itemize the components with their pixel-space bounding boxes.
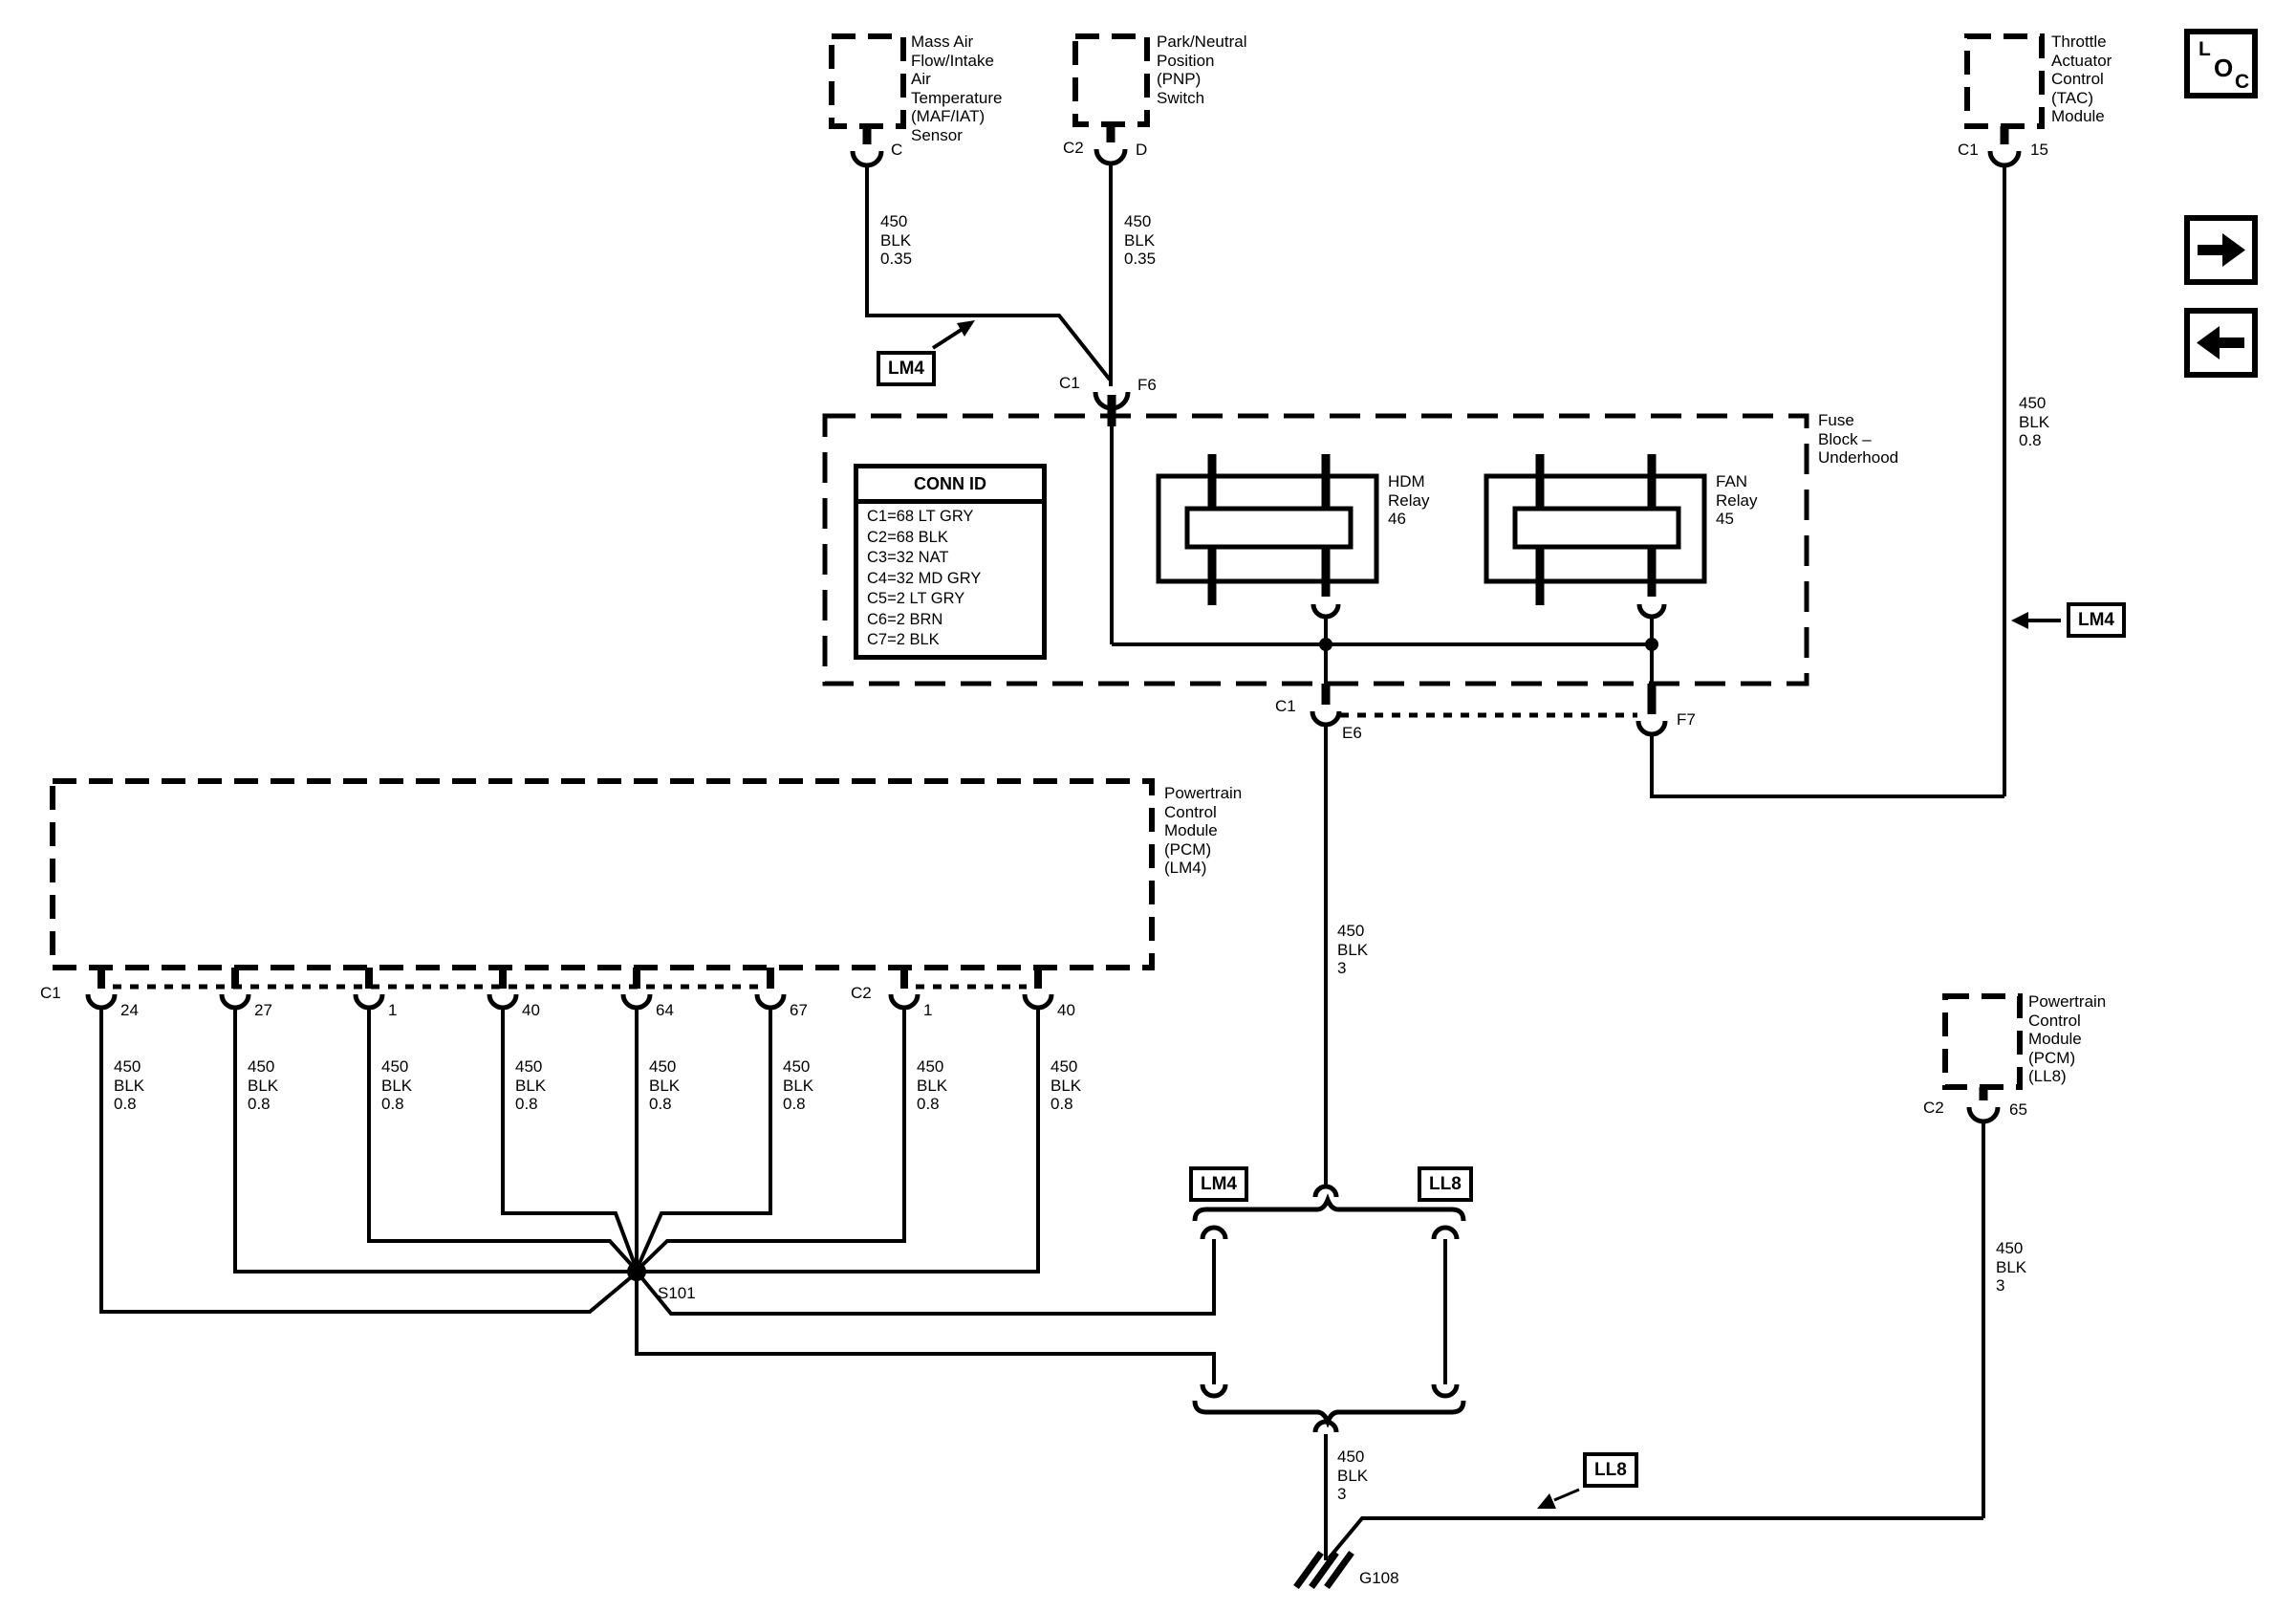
f6-conn-label: C1 xyxy=(1059,375,1080,391)
pcm-pin-number: 64 xyxy=(656,1002,674,1018)
pcm-pin-wire-label: 450 BLK 0.8 xyxy=(783,1057,813,1114)
maf-wire-label: 450 BLK 0.35 xyxy=(880,212,912,269)
pcm-ll8-box xyxy=(1945,996,2020,1087)
hdm-relay-label: HDM Relay 46 xyxy=(1388,472,1429,529)
pcm-pin-number: 40 xyxy=(522,1002,540,1018)
lm4-right-tag[interactable]: LM4 xyxy=(2067,602,2126,638)
junction-hooks xyxy=(1202,1186,1457,1432)
lm4-top-tag[interactable]: LM4 xyxy=(877,351,936,386)
pcm-pin-cups xyxy=(88,994,1051,1008)
tac-module-label: Throttle Actuator Control (TAC) Module xyxy=(2051,33,2112,126)
pcm-ll8-pin-label: 65 xyxy=(2009,1101,2027,1118)
fuse-block-label: Fuse Block – Underhood xyxy=(1818,411,1898,468)
pcm-pin-wire-label: 450 BLK 0.8 xyxy=(515,1057,546,1114)
pcm-pin-number: 1 xyxy=(388,1002,397,1018)
ground-wire-label: 450 BLK 3 xyxy=(1337,1448,1368,1504)
maf-wire xyxy=(867,165,1110,380)
maf-sensor-label: Mass Air Flow/Intake Air Temperature (MA… xyxy=(911,33,1002,144)
pin40-wire xyxy=(503,1008,637,1270)
left-arrow-icon xyxy=(2190,314,2252,372)
lm4-right-arrowhead xyxy=(2011,612,2028,629)
f6-pin-label: F6 xyxy=(1137,377,1157,393)
lm4-top-arrow-shaft xyxy=(933,329,963,348)
pcm-c2-label: C2 xyxy=(851,985,872,1001)
pcm-pin-number: 1 xyxy=(923,1002,932,1018)
ll8-bottom-tag[interactable]: LL8 xyxy=(1583,1452,1638,1488)
tac-wire-label: 450 BLK 0.8 xyxy=(2019,394,2049,450)
pcm-pin-number: 27 xyxy=(254,1002,272,1018)
pin67-wire xyxy=(637,1008,770,1270)
pnp-wire-label: 450 BLK 0.35 xyxy=(1124,212,1156,269)
pnp-pin-label: D xyxy=(1136,142,1147,158)
splice-to-junction-top xyxy=(637,1239,1214,1314)
bottom-brace xyxy=(1195,1401,1463,1422)
splice-dot xyxy=(627,1262,646,1281)
junction-lm4-tag[interactable]: LM4 xyxy=(1189,1166,1248,1202)
pcm-pin-wire-label: 450 BLK 0.8 xyxy=(248,1057,278,1114)
conn-id-title: CONN ID xyxy=(858,468,1042,504)
ll8-arrowhead xyxy=(1537,1493,1556,1509)
maf-pin-cup xyxy=(853,151,881,165)
e6-cup xyxy=(1312,711,1339,725)
lm4-top-arrowhead xyxy=(957,320,975,337)
loc-letter-c: C xyxy=(2235,71,2249,94)
splice-to-junction-bottom xyxy=(637,1272,1214,1384)
pnp-pin-cup xyxy=(1096,149,1125,163)
pnp-switch-box xyxy=(1075,36,1147,124)
junction-dots xyxy=(627,638,1658,1281)
conn-id-row: C7=2 BLK xyxy=(858,630,1042,651)
wires xyxy=(101,163,2004,1560)
tac-conn-label: C1 xyxy=(1958,142,1979,158)
conn-id-row: C6=2 BRN xyxy=(858,610,1042,631)
f7-cup xyxy=(1638,721,1665,734)
e6-pin-label: E6 xyxy=(1342,725,1362,741)
ll8-wire-label: 450 BLK 3 xyxy=(1996,1239,2026,1295)
tac-pin-cup xyxy=(1990,151,2019,165)
conn-id-row: C5=2 LT GRY xyxy=(858,589,1042,610)
f7-wire xyxy=(1652,734,2004,796)
wiring-diagram: Mass Air Flow/Intake Air Temperature (MA… xyxy=(0,0,2296,1611)
e6-conn-label: C1 xyxy=(1275,698,1296,714)
pcm-pin-wire-label: 450 BLK 0.8 xyxy=(114,1057,144,1114)
hdm-out-cup xyxy=(1313,604,1338,617)
right-arrow-icon xyxy=(2190,221,2252,279)
e6-wire-label: 450 BLK 3 xyxy=(1337,922,1368,978)
f7-pin-label: F7 xyxy=(1677,711,1696,728)
reference-arrows xyxy=(933,320,2061,1509)
splice-label: S101 xyxy=(658,1285,696,1301)
pcm-pin-wire-label: 450 BLK 0.8 xyxy=(381,1057,412,1114)
maf-pin-label: C xyxy=(891,142,902,158)
pnp-switch-label: Park/Neutral Position (PNP) Switch xyxy=(1157,33,1246,107)
conn-id-row: C4=32 MD GRY xyxy=(858,569,1042,590)
tac-module-box xyxy=(1967,36,2042,126)
ll8-branch-wire xyxy=(1329,1518,1983,1558)
loc-letter-o: O xyxy=(2214,54,2233,83)
loc-button[interactable]: L O C xyxy=(2184,29,2258,98)
top-brace xyxy=(1195,1200,1463,1221)
next-page-button[interactable] xyxy=(2184,215,2258,285)
conn-id-row: C2=68 BLK xyxy=(858,528,1042,549)
junction-braces xyxy=(1195,1200,1463,1422)
pnp-conn-label: C2 xyxy=(1063,140,1084,156)
pcm-pin-wire-label: 450 BLK 0.8 xyxy=(649,1057,680,1114)
pcm-pin-number: 67 xyxy=(790,1002,808,1018)
pcm-ll8-label: Powertrain Control Module (PCM) (LL8) xyxy=(2028,992,2106,1086)
pcm-c1-label: C1 xyxy=(40,985,61,1001)
pcm-pin-wire-label: 450 BLK 0.8 xyxy=(1051,1057,1081,1114)
loc-letter-l: L xyxy=(2199,38,2211,61)
previous-page-button[interactable] xyxy=(2184,308,2258,378)
pcm-ll8-conn-label: C2 xyxy=(1923,1099,1944,1116)
junction-ll8-tag[interactable]: LL8 xyxy=(1418,1166,1473,1202)
pcm-pin-number: 24 xyxy=(120,1002,139,1018)
c2pin40-wire xyxy=(639,1008,1038,1272)
hdm-relay-symbol xyxy=(1159,476,1376,581)
conn-id-row: C1=68 LT GRY xyxy=(858,507,1042,528)
ll8-pin-cup xyxy=(1969,1107,1998,1121)
pcm-lm4-box xyxy=(53,781,1152,968)
conn-id-row: C3=32 NAT xyxy=(858,548,1042,569)
fan-out-cup xyxy=(1639,604,1664,617)
pcm-pin-wire-label: 450 BLK 0.8 xyxy=(917,1057,947,1114)
maf-sensor-box xyxy=(832,36,903,126)
pcm-lm4-label: Powertrain Control Module (PCM) (LM4) xyxy=(1164,784,1242,878)
tac-pin-label: 15 xyxy=(2030,142,2048,158)
connector-dotted-lines xyxy=(113,715,1637,987)
ll8-arrow-shaft xyxy=(1554,1490,1579,1500)
fan-relay-symbol xyxy=(1486,476,1704,581)
component-outline-boxes xyxy=(53,36,2042,1087)
fan-relay-label: FAN Relay 45 xyxy=(1716,472,1757,529)
conn-id-table: CONN ID C1=68 LT GRY C2=68 BLK C3=32 NAT… xyxy=(854,464,1047,660)
ground-label: G108 xyxy=(1359,1570,1399,1586)
pcm-pin-number: 40 xyxy=(1057,1002,1075,1018)
pin27-wire xyxy=(235,1008,635,1272)
